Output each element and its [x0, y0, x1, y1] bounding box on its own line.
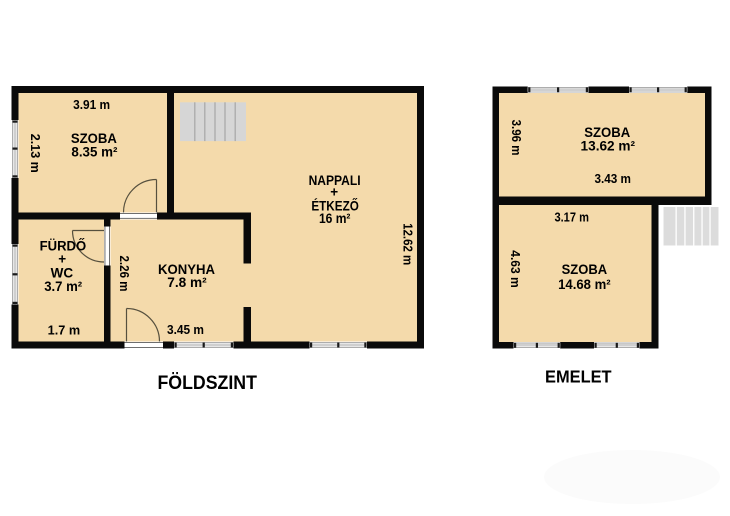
- svg-text:2.13 m: 2.13 m: [28, 134, 43, 173]
- svg-text:2.26 m: 2.26 m: [117, 256, 132, 292]
- svg-text:7.8 m²: 7.8 m²: [167, 275, 207, 290]
- svg-text:1.7 m: 1.7 m: [48, 323, 81, 338]
- svg-text:SZOBA: SZOBA: [584, 125, 630, 140]
- svg-text:3.96 m: 3.96 m: [509, 120, 524, 156]
- svg-text:8.35 m²: 8.35 m²: [71, 145, 117, 160]
- svg-text:+: +: [330, 185, 338, 200]
- svg-text:3.91 m: 3.91 m: [73, 97, 110, 112]
- svg-text:12.62 m: 12.62 m: [401, 223, 416, 265]
- svg-text:4.63 m: 4.63 m: [508, 250, 523, 288]
- svg-text:+: +: [58, 252, 66, 267]
- svg-text:3.7 m²: 3.7 m²: [44, 279, 82, 294]
- svg-text:FÖLDSZINT: FÖLDSZINT: [157, 373, 257, 394]
- svg-text:3.45 m: 3.45 m: [167, 322, 204, 337]
- svg-text:13.62 m²: 13.62 m²: [581, 139, 636, 154]
- svg-text:EMELET: EMELET: [545, 366, 612, 386]
- svg-text:SZOBA: SZOBA: [562, 262, 608, 277]
- svg-text:14.68 m²: 14.68 m²: [558, 277, 611, 292]
- svg-text:3.43 m: 3.43 m: [594, 171, 631, 186]
- svg-text:16 m²: 16 m²: [319, 211, 351, 226]
- svg-text:3.17 m: 3.17 m: [554, 210, 589, 225]
